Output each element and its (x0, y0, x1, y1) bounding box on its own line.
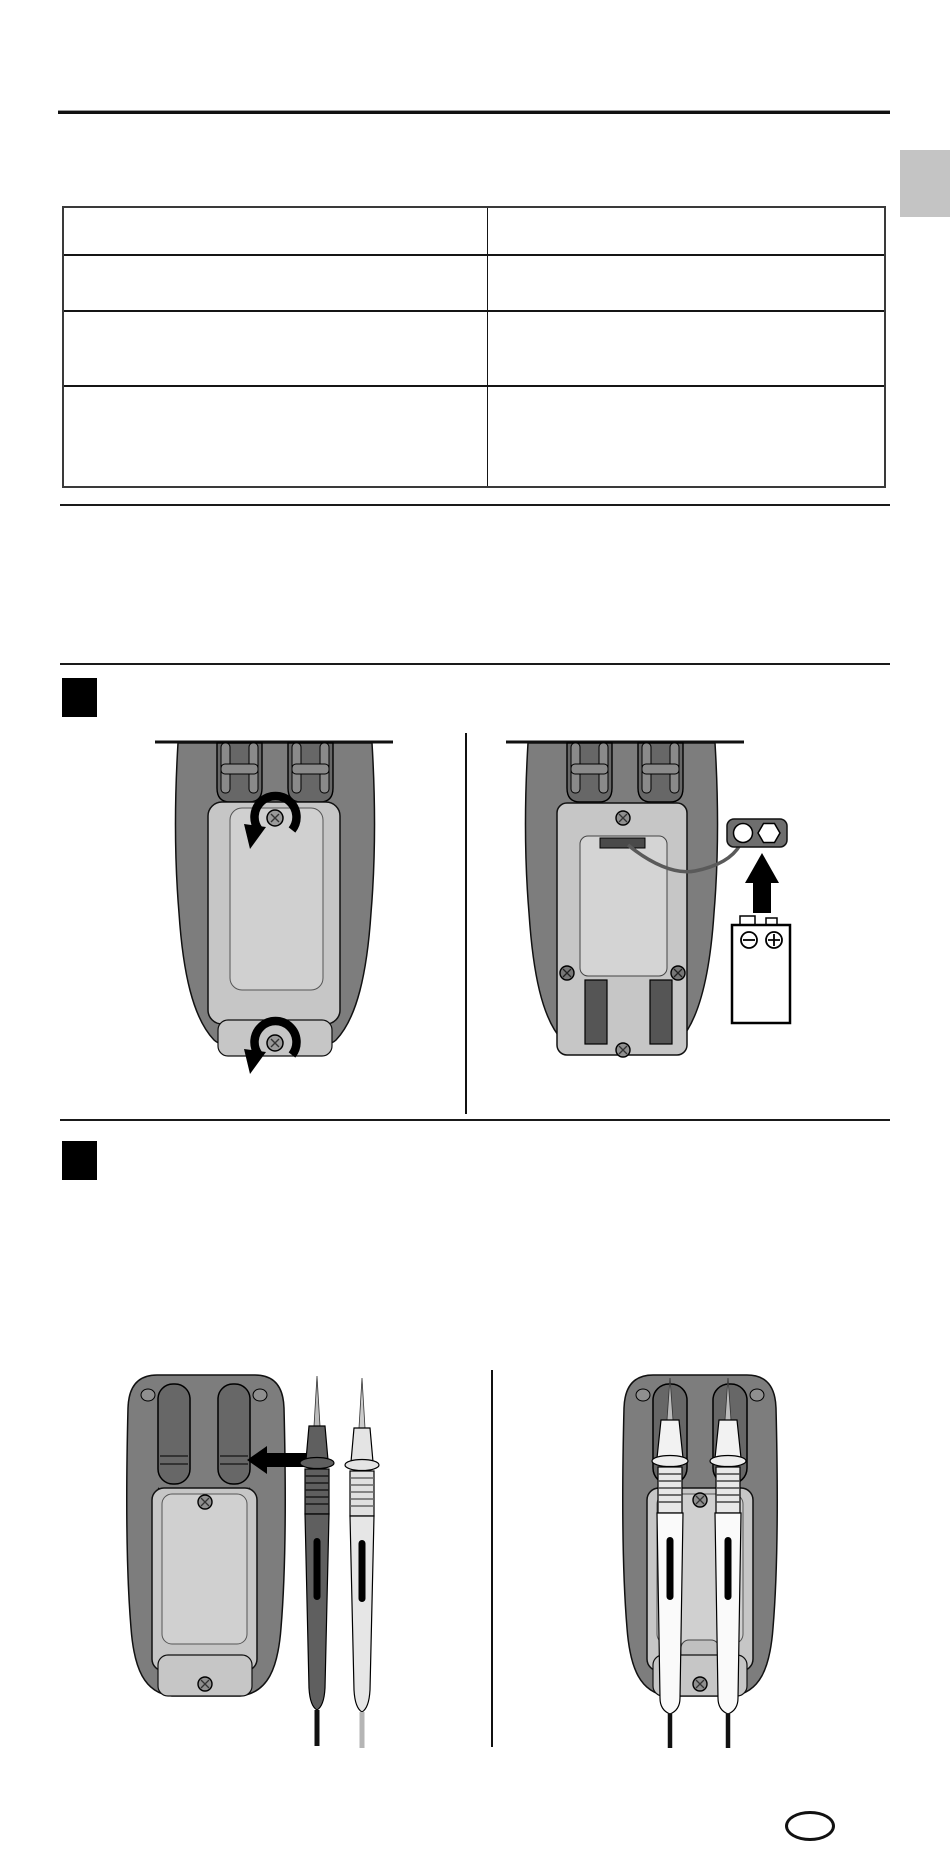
section-rule (60, 663, 890, 665)
corner-hole (636, 1389, 650, 1401)
test-probe-light-icon (345, 1378, 379, 1748)
figure-battery-compartment-open (490, 733, 800, 1083)
screw-icon (616, 811, 630, 825)
table-row-line (64, 385, 884, 387)
figure-probes-and-meter (100, 1368, 395, 1760)
battery-door-inner (162, 1494, 247, 1644)
battery-well (580, 836, 667, 976)
page-number-oval (785, 1811, 835, 1841)
section-rule (60, 1119, 890, 1121)
figure-divider-line (465, 733, 467, 1114)
table-column-line (487, 208, 488, 486)
screw-icon (198, 1677, 212, 1691)
probe-channel (567, 743, 612, 802)
top-rule (58, 110, 890, 114)
figure-divider-line (491, 1370, 493, 1747)
probe-channel (638, 743, 683, 802)
black-square-marker (62, 678, 97, 717)
screw-icon (671, 966, 685, 980)
screw-icon (560, 966, 574, 980)
screw-icon (198, 1495, 212, 1509)
probe-channel (217, 743, 262, 811)
battery-door-inner (230, 808, 323, 990)
corner-hole (253, 1389, 267, 1401)
battery-9v-icon (732, 916, 790, 1023)
figure-battery-cover-screws (140, 733, 410, 1083)
up-arrow-icon (745, 853, 779, 913)
screw-icon (693, 1493, 707, 1507)
spec-table (62, 206, 886, 488)
table-row-line (64, 254, 884, 256)
table-row-line (64, 310, 884, 312)
wire-slot (600, 838, 645, 848)
battery-connector-icon (727, 819, 787, 847)
corner-hole (750, 1389, 764, 1401)
corner-hole (141, 1389, 155, 1401)
probe-channel (218, 1384, 250, 1493)
black-square-marker (62, 1141, 97, 1180)
screw-icon (693, 1677, 707, 1691)
screw-icon (616, 1043, 630, 1057)
figure-probes-stored (600, 1368, 800, 1760)
manual-page (0, 0, 950, 1875)
contact-pad (585, 980, 607, 1044)
test-probe-dark-icon (300, 1376, 334, 1746)
contact-pad (650, 980, 672, 1044)
probe-channel (158, 1384, 190, 1493)
section-rule (60, 504, 890, 506)
chapter-edge-tab (900, 150, 950, 217)
